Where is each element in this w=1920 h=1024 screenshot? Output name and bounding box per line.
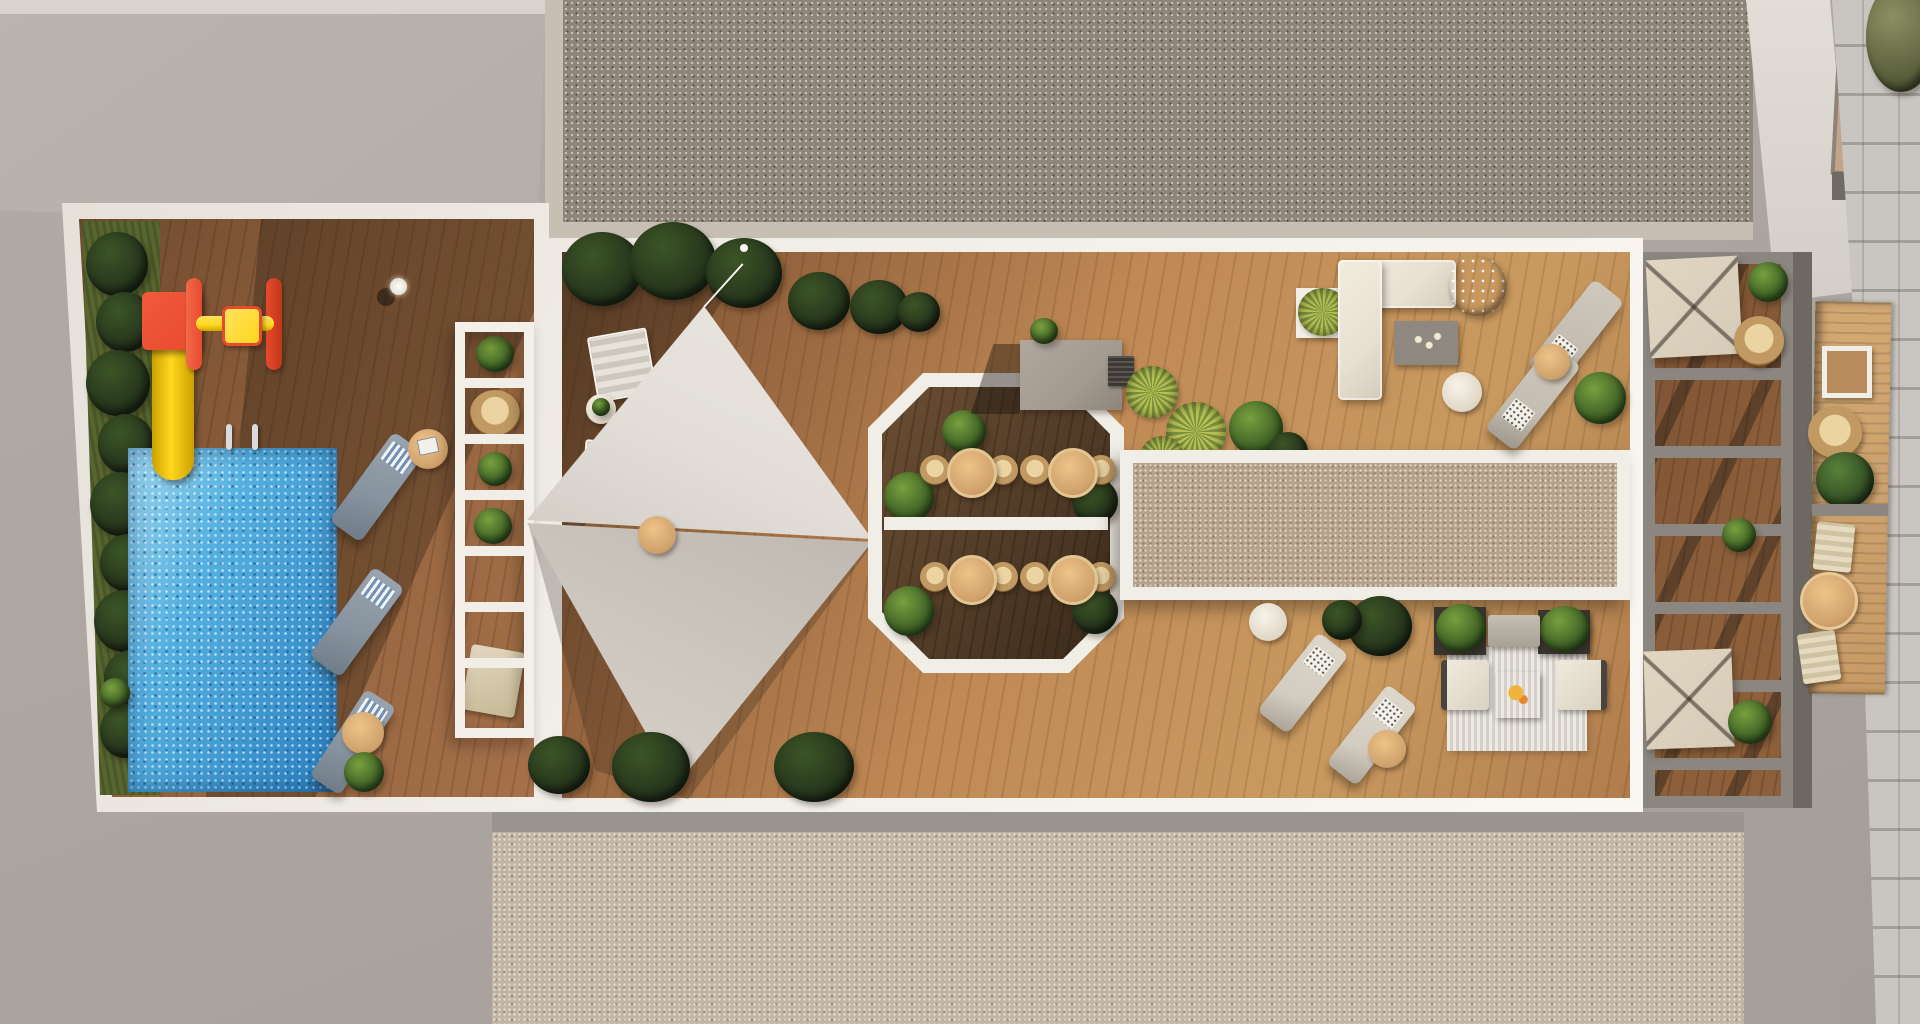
trellis-rung <box>465 378 524 388</box>
dining-chair <box>920 455 950 485</box>
trellis-rung <box>465 658 524 668</box>
dining-chair <box>920 562 950 592</box>
sectional-sofa-side <box>1338 260 1382 400</box>
hedge-bush <box>86 350 150 416</box>
trellis-rung <box>465 434 524 444</box>
balcony-round-table <box>1800 572 1858 630</box>
balcony-divider <box>1812 504 1888 516</box>
planter-hedge <box>898 292 940 332</box>
sail-side-table <box>638 516 676 554</box>
pergola-plant <box>1722 518 1756 552</box>
spinner-toy-hub <box>222 306 262 346</box>
sail-anchor-pole <box>740 244 748 252</box>
lower-roof-edge-band <box>492 812 1744 832</box>
rooftop-terrace-render <box>0 0 1920 1024</box>
pebble-court <box>1120 450 1630 600</box>
lower-roof-gravel <box>492 832 1744 1024</box>
patio-canopy <box>1645 256 1742 359</box>
deck-bush <box>100 678 130 708</box>
upper-left-roof-plate <box>0 0 546 232</box>
pergola-beam <box>1655 524 1781 536</box>
planter-shrub <box>1540 606 1590 652</box>
octagon-shrub <box>942 410 986 452</box>
planter-hedge <box>630 222 716 300</box>
dining-table <box>1048 448 1098 498</box>
balcony-rattan-chair <box>1808 406 1862 460</box>
round-shrub <box>1574 372 1626 424</box>
dining-chair <box>1020 562 1050 592</box>
planter-shrub <box>1436 604 1486 652</box>
hedge-bush <box>86 232 148 296</box>
dining-table <box>947 448 997 498</box>
pergola-plant <box>1748 262 1788 302</box>
planter-hedge <box>612 732 690 802</box>
dining-table <box>1048 555 1098 605</box>
light-post <box>390 278 407 295</box>
flowering-shrub <box>1448 256 1506 316</box>
dining-table <box>947 555 997 605</box>
coffee-table <box>1394 321 1458 365</box>
planter-hedge <box>528 736 590 794</box>
pool-handrail <box>226 424 232 450</box>
pergola-beam <box>1655 758 1781 770</box>
dining-chair <box>1020 455 1050 485</box>
trellis-rung <box>465 490 524 500</box>
trellis-rung <box>465 602 524 612</box>
swimming-pool <box>128 448 337 792</box>
balcony-folding-chair <box>1797 630 1842 685</box>
balcony-folding-chair <box>1813 521 1856 573</box>
service-block <box>1020 340 1122 410</box>
balcony-table <box>1822 346 1872 398</box>
patio-table <box>1496 672 1540 718</box>
balcony-shrub <box>1816 452 1874 508</box>
upper-roof-gravel <box>563 0 1753 222</box>
lounge-bench <box>1488 615 1540 647</box>
trellis-rung <box>465 546 524 556</box>
octagon-shrub <box>884 586 934 636</box>
planter-hedge <box>774 732 854 802</box>
parapet-strip <box>0 0 546 14</box>
lounge-armchair <box>1557 660 1607 710</box>
side-table <box>1534 344 1570 380</box>
balcony-shadow-gap <box>1793 252 1812 808</box>
side-table <box>1368 730 1406 768</box>
service-plant <box>1030 318 1058 344</box>
octagon-divider <box>884 517 1108 530</box>
pergola-beam <box>1655 602 1781 614</box>
pergola-beam <box>1655 368 1781 380</box>
potted-plant <box>592 398 610 416</box>
towel-table <box>342 712 384 754</box>
pergola-plant <box>1728 700 1772 744</box>
hanging-egg-chair <box>1734 316 1784 366</box>
deck-bush <box>344 752 384 792</box>
yucca-plant <box>1126 366 1178 418</box>
patio-canopy <box>1643 648 1734 749</box>
lounge-armchair <box>1441 660 1489 710</box>
side-table <box>1442 372 1482 412</box>
pool-handrail <box>252 424 258 450</box>
planter-hedge <box>788 272 850 330</box>
palm-shrub <box>1322 600 1362 640</box>
pergola-beam <box>1655 446 1781 458</box>
side-table <box>1249 603 1287 641</box>
lower-right-concrete <box>1744 812 1844 1024</box>
